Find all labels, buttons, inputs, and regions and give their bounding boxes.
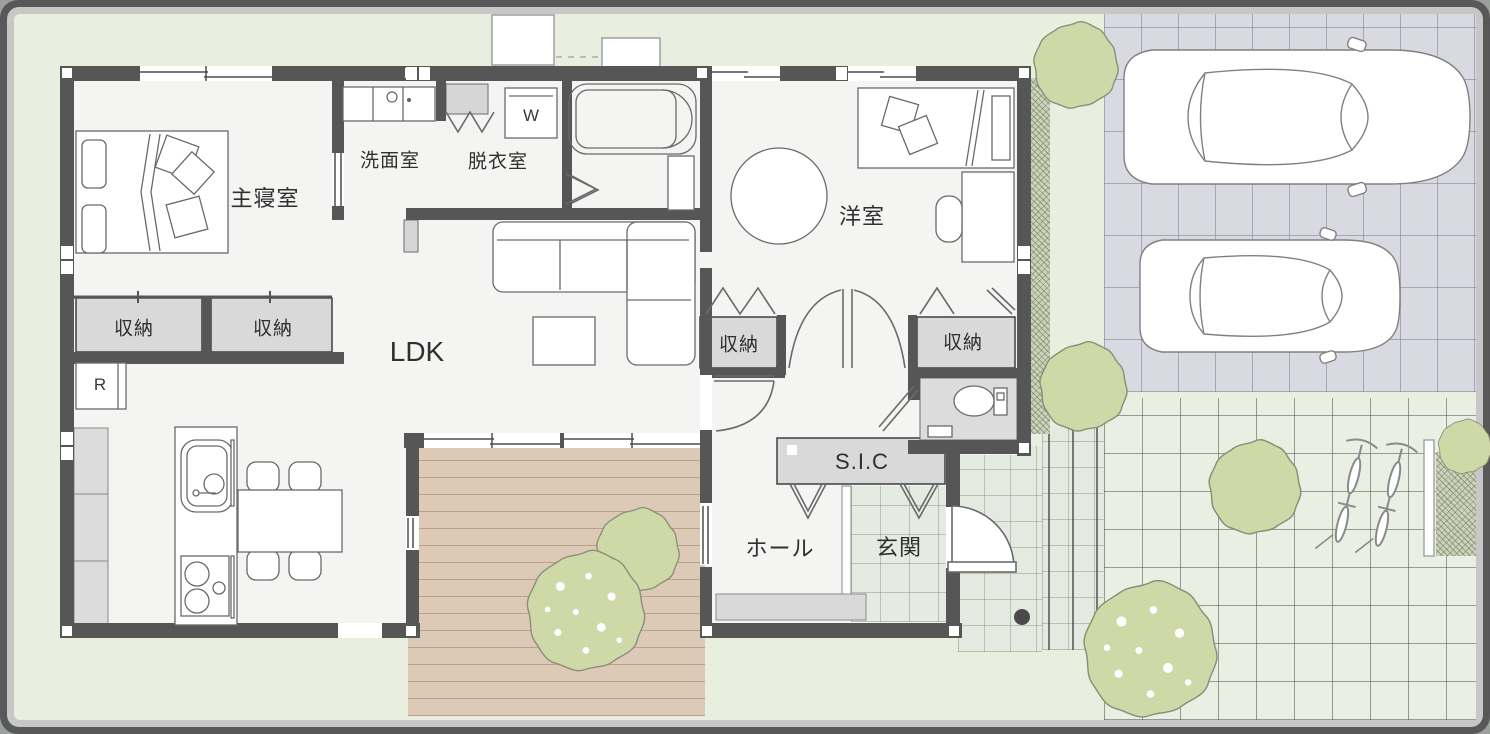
- coffee-table: [533, 317, 595, 365]
- label-washroom: 洗面室: [360, 146, 420, 173]
- round-rug: [731, 148, 827, 244]
- tree-icon: [1084, 581, 1217, 717]
- plan-vectors: [0, 0, 1490, 734]
- label-entrance: 玄関: [876, 530, 922, 562]
- label-western-room: 洋室: [839, 199, 885, 231]
- bathtub: [569, 84, 696, 154]
- closet-folding-door: [920, 288, 954, 314]
- kitchen-island: [175, 427, 237, 625]
- exterior-equipment: [492, 15, 660, 68]
- car-large-icon: [1124, 36, 1470, 197]
- western-double-door-leaves: [843, 289, 852, 368]
- equipment-box: [602, 38, 660, 68]
- label-master-bedroom: 主寝室: [230, 181, 299, 213]
- sic-folding-door: [790, 484, 826, 518]
- label-closet: 収納: [719, 330, 759, 357]
- label-closet: 収納: [253, 314, 293, 341]
- western-door-arc: [854, 290, 905, 368]
- closet-folding-door: [706, 288, 775, 314]
- toilet-shelf: [928, 426, 952, 437]
- wall-stub: [404, 220, 418, 252]
- desk-chair: [936, 196, 962, 242]
- bed-single: [858, 88, 1014, 168]
- label-dressing-room: 脱衣室: [468, 147, 528, 174]
- entrance-door-leaf: [948, 562, 1016, 572]
- entrance-step: [716, 594, 866, 620]
- label-closet: 収納: [114, 314, 154, 341]
- bath-counter: [668, 156, 694, 210]
- dining-set: [238, 462, 342, 580]
- linen-cabinet: [446, 84, 488, 114]
- label-hall: ホール: [745, 531, 814, 563]
- sic-folding-door: [794, 484, 822, 511]
- label-ldk: LDK: [390, 336, 444, 368]
- bed-double: [76, 131, 228, 253]
- bicycle-icon: [1355, 440, 1418, 562]
- hall-door-leaf: [714, 376, 774, 381]
- label-washer: W: [523, 106, 539, 126]
- hall-partition: [842, 486, 851, 594]
- tree-icon: [1438, 419, 1490, 474]
- sic-folding-door: [900, 484, 938, 518]
- kitchen-counter: [74, 428, 108, 624]
- tree-icon: [1209, 440, 1301, 534]
- tree-icon: [1034, 22, 1118, 109]
- tree-icon: [1040, 342, 1127, 431]
- dressing-folding-door: [446, 112, 494, 132]
- hall-door-arc: [716, 381, 774, 431]
- desk: [962, 172, 1014, 262]
- bicycles: [1315, 436, 1418, 562]
- entrance-door-arc: [952, 506, 1014, 568]
- floorplan-canvas: 主寝室 収納 収納 洗面室 脱衣室 W 洋室 収納 収納 LDK S.I.C ホ…: [0, 0, 1490, 734]
- garden-bench: [1424, 440, 1434, 556]
- equipment-box: [492, 15, 554, 65]
- bicycle-icon: [1315, 436, 1378, 558]
- label-closet: 収納: [943, 328, 983, 355]
- label-shoe-closet: S.I.C: [835, 449, 889, 475]
- porch-marker-dot: [1014, 609, 1030, 625]
- toilet-fixture: [954, 386, 1007, 416]
- sic-folding-door: [904, 484, 934, 511]
- closet-door-leaf: [987, 288, 1015, 314]
- western-door-arc: [789, 290, 841, 368]
- car-small-icon: [1140, 227, 1400, 364]
- vanity: [343, 87, 435, 121]
- cars: [1124, 36, 1470, 364]
- label-refrigerator: R: [94, 375, 106, 395]
